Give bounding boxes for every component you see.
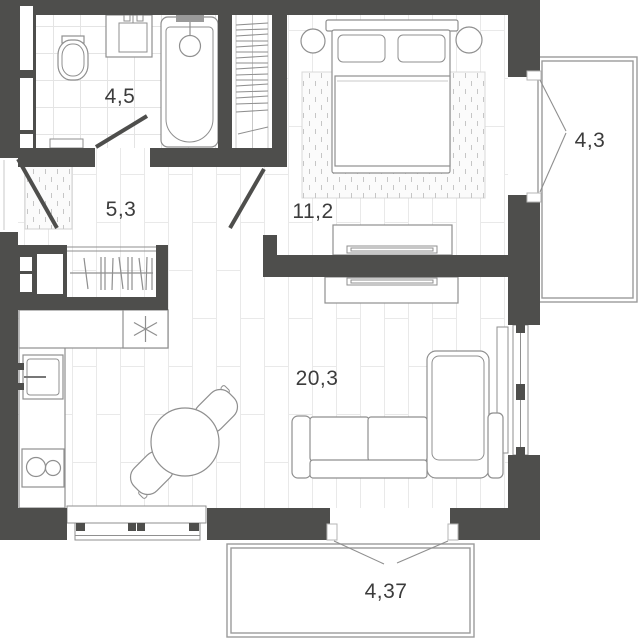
faucet-handle xyxy=(124,15,130,21)
room-label-balcony-right: 4,3 xyxy=(575,129,606,153)
wall-niche xyxy=(20,274,32,292)
headboard xyxy=(326,20,458,31)
radiator xyxy=(50,139,83,148)
sink-basin xyxy=(119,23,147,52)
nightstand xyxy=(456,27,482,53)
windowsill xyxy=(67,506,206,523)
balcony-door-swing-right xyxy=(540,80,566,192)
faucet-handle xyxy=(137,15,143,21)
room-label-hallway: 5,3 xyxy=(106,198,137,222)
sofa-front xyxy=(310,460,427,478)
wall-niche xyxy=(20,134,33,148)
room-label-bathroom: 4,5 xyxy=(105,85,136,109)
window-bottom xyxy=(67,506,207,540)
shower-bar xyxy=(176,15,204,22)
dining-table xyxy=(151,408,219,476)
balcony-right xyxy=(538,57,637,302)
sofa-cushion xyxy=(368,417,427,461)
pillow xyxy=(338,35,385,62)
floor-plan: 4,5 5,3 11,2 4,3 20,3 4,37 xyxy=(0,0,640,640)
sofa-armrest xyxy=(488,413,503,478)
wall-niche xyxy=(20,78,33,130)
room-label-bedroom: 11,2 xyxy=(292,200,333,224)
wall-niche xyxy=(37,254,63,294)
balcony-bottom xyxy=(227,544,474,637)
wall-niche xyxy=(20,6,33,70)
room-label-balcony-bottom: 4,37 xyxy=(365,580,408,604)
sofa-cushion xyxy=(310,417,369,461)
blanket xyxy=(335,76,450,166)
floor-plan-canvas xyxy=(0,0,640,640)
nightstand xyxy=(301,29,325,53)
room-label-living-kitchen: 20,3 xyxy=(296,367,339,391)
wall-niche xyxy=(20,257,32,271)
hob xyxy=(22,449,64,487)
shower-head xyxy=(180,36,201,57)
sofa-armrest xyxy=(292,416,311,478)
pillow xyxy=(398,35,445,62)
